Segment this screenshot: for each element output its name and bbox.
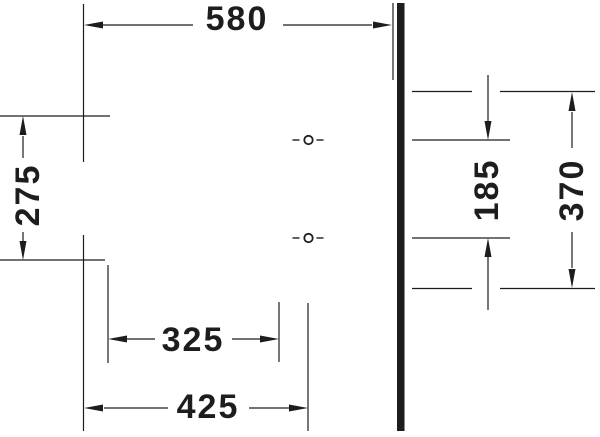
dim-370-label: 370 [555, 159, 589, 222]
drawing-linework [0, 0, 600, 437]
mount-hole-top [293, 136, 324, 144]
wall-panel [397, 3, 405, 431]
dim-185-label: 185 [470, 159, 504, 222]
dim-580-label: 580 [206, 2, 269, 36]
dimension-drawing: 580 275 325 425 185 370 [0, 0, 600, 437]
dim-580 [84, 3, 394, 431]
dim-425-label: 425 [177, 390, 240, 424]
mount-hole-bottom [293, 234, 324, 242]
dim-325-label: 325 [162, 323, 225, 357]
dim-275-label: 275 [11, 164, 45, 227]
